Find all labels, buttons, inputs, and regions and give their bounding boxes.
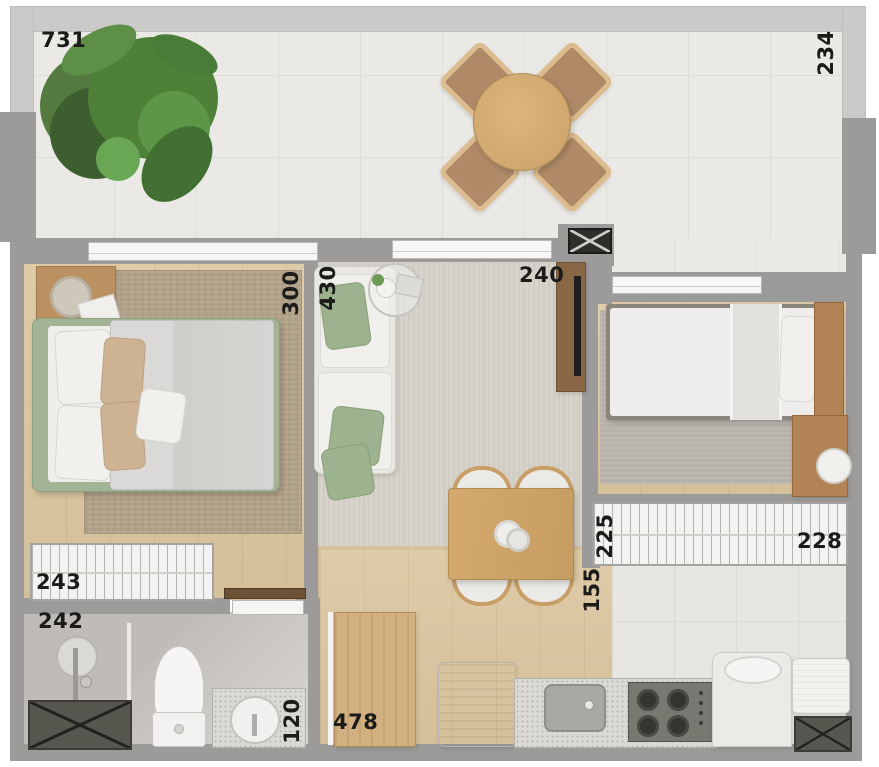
burner — [667, 715, 689, 737]
table-centerpiece — [506, 528, 530, 552]
column-right — [842, 118, 876, 254]
laundry-tank — [792, 658, 850, 714]
toilet-bowl — [154, 646, 204, 722]
burner — [637, 715, 659, 737]
bathroom-faucet — [252, 714, 257, 736]
bathroom-door — [232, 600, 304, 615]
tv — [574, 276, 581, 376]
shower-hand-spray — [80, 676, 92, 688]
dimension-balcony-width: 731 — [41, 30, 86, 50]
dimension-bathroom-width: 120 — [282, 691, 302, 751]
kitchen-sink — [544, 684, 606, 732]
shaft-box — [568, 228, 612, 254]
balcony-table — [473, 73, 571, 171]
wall-bathroom-kitchen — [308, 598, 320, 748]
shower-drain-box — [28, 700, 132, 750]
washing-machine-lid — [724, 656, 782, 684]
stove-knob — [699, 711, 703, 715]
kitchen-faucet — [584, 700, 594, 710]
dimension-bedroom1-depth: 300 — [281, 263, 301, 323]
stove-knob — [699, 721, 703, 725]
sofa-pillow-sage — [320, 442, 376, 502]
plant — [30, 25, 230, 215]
shower-arm — [73, 648, 78, 704]
fridge — [438, 662, 516, 747]
floor-plan: 731 234 300 430 240 243 242 120 225 228 … — [0, 0, 879, 767]
dimension-wardrobe-depth: 225 — [595, 506, 615, 566]
bedroom1-door-leaf — [224, 588, 306, 599]
stove-knob — [699, 691, 703, 695]
dimension-living-width: 240 — [519, 265, 564, 285]
utility-drain-box — [794, 716, 852, 752]
balcony-floor-right-extension — [592, 238, 846, 274]
dimension-kitchen-length: 478 — [333, 712, 378, 732]
dimension-balcony-depth: 234 — [816, 23, 836, 83]
x-drain-icon — [30, 702, 130, 748]
shaft-x-icon — [570, 230, 610, 252]
stove-knob — [699, 701, 703, 705]
single-bed-pillow — [779, 315, 818, 402]
dimension-bedroom1-width: 243 — [36, 572, 81, 592]
desk-stool — [816, 448, 852, 484]
bed-pillow-tan — [100, 337, 147, 408]
flower-greens — [372, 274, 384, 286]
burner — [667, 689, 689, 711]
dimension-kitchen-corridor: 155 — [582, 560, 602, 620]
plant-leaf — [96, 137, 140, 181]
dimension-bathroom-length: 242 — [38, 611, 83, 631]
toilet-button — [174, 724, 184, 734]
bed-cushion — [135, 387, 188, 445]
bedroom1-balcony-window — [88, 242, 318, 261]
outer-wall-left-lower — [10, 238, 24, 760]
living-balcony-door — [392, 240, 552, 259]
x-drain-icon — [796, 718, 850, 750]
single-bed-headboard — [814, 302, 844, 424]
burner — [637, 689, 659, 711]
dimension-living-depth: 430 — [318, 258, 338, 318]
dimension-wardrobe-width: 228 — [797, 531, 842, 551]
cooktop — [628, 682, 714, 742]
single-bed-blanket — [730, 304, 782, 420]
bedroom2-balcony-window — [612, 276, 762, 294]
